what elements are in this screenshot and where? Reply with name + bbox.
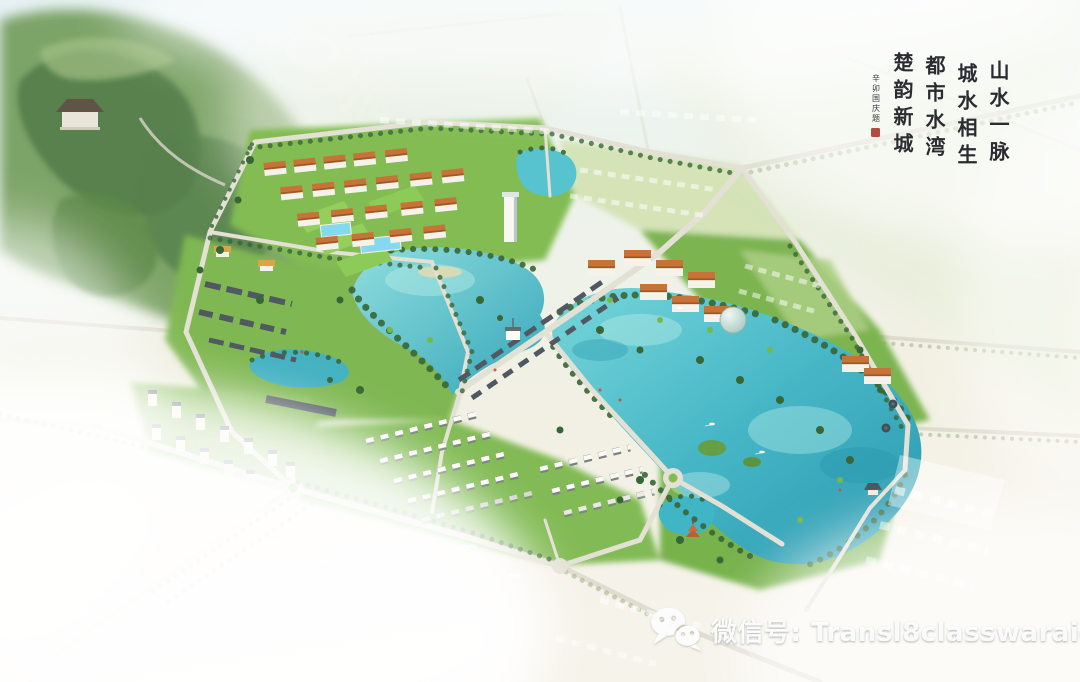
- calligraphy-poem: 山水一脉 城水相生 都市水湾 楚韵新城 辛卯国庆题: [869, 50, 1008, 171]
- calligraphy-column-1: 山水一脉: [988, 60, 1008, 171]
- watermark-text: 微信号: Transl8classwaraid: [711, 612, 1080, 649]
- calligraphy-column-2: 城水相生: [956, 63, 976, 171]
- watermark: 微信号: Transl8classwaraid: [650, 604, 1080, 656]
- calligraphy-signature-block: 辛卯国庆题: [871, 74, 880, 171]
- calligraphy-column-3: 都市水湾: [924, 55, 944, 171]
- wechat-icon: [647, 601, 704, 658]
- masterplan-rendering: 山水一脉 城水相生 都市水湾 楚韵新城 辛卯国庆题 微信号: Transl8cl…: [0, 0, 1080, 682]
- calligraphy-signature: 辛卯国庆题: [872, 74, 880, 124]
- artist-seal-icon: [871, 128, 880, 137]
- calligraphy-column-4: 楚韵新城: [892, 52, 912, 171]
